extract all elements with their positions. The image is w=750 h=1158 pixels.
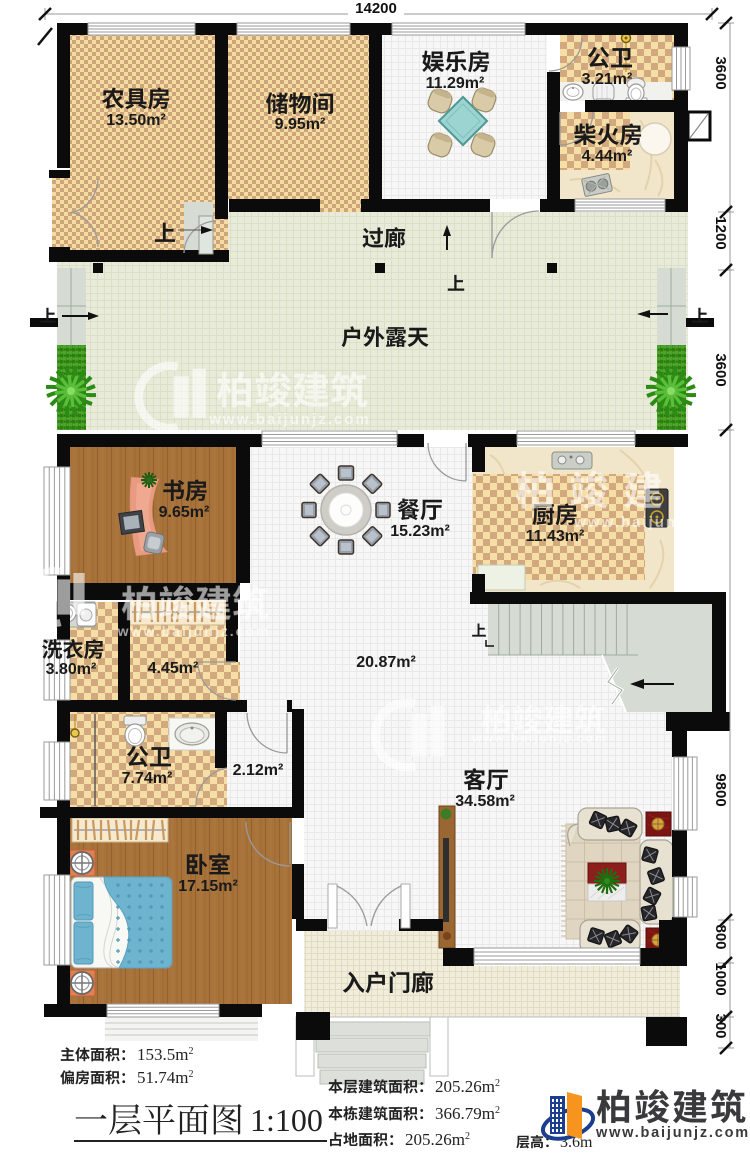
svg-text:17.15m²: 17.15m² xyxy=(178,878,238,895)
svg-text:1000: 1000 xyxy=(712,962,729,995)
svg-text:14200: 14200 xyxy=(355,0,397,17)
svg-text:3.80m²: 3.80m² xyxy=(46,661,97,678)
svg-text:www.baijunjz.com: www.baijunjz.com xyxy=(117,623,271,639)
svg-text:www.baijunjz.com: www.baijunjz.com xyxy=(573,514,735,531)
svg-text:11.29m²: 11.29m² xyxy=(426,75,485,92)
svg-text:4.44m²: 4.44m² xyxy=(582,148,633,165)
svg-text:www.baijunjz.com: www.baijunjz.com xyxy=(595,1125,750,1141)
svg-text:366.79m2: 366.79m2 xyxy=(435,1104,500,1123)
svg-text:34.58m²: 34.58m² xyxy=(455,793,515,810)
svg-text:205.26m2: 205.26m2 xyxy=(405,1130,470,1149)
svg-text:3.21m²: 3.21m² xyxy=(582,71,633,88)
svg-text:153.5m2: 153.5m2 xyxy=(137,1045,193,1064)
svg-text:3600: 3600 xyxy=(712,353,729,386)
svg-text:4.45m²: 4.45m² xyxy=(148,660,199,677)
svg-text:13.50m²: 13.50m² xyxy=(106,112,166,129)
svg-text:300: 300 xyxy=(712,1013,729,1038)
svg-text:www.baijunjz.com: www.baijunjz.com xyxy=(208,411,370,428)
svg-text:800: 800 xyxy=(712,924,729,949)
svg-text:9.95m²: 9.95m² xyxy=(275,116,326,133)
svg-text:www.baijunjz.com: www.baijunjz.com xyxy=(471,731,608,745)
svg-text:205.26m2: 205.26m2 xyxy=(435,1077,500,1096)
svg-text:1:100: 1:100 xyxy=(250,1102,323,1138)
svg-text:20.87m²: 20.87m² xyxy=(356,654,416,671)
svg-text:2.12m²: 2.12m² xyxy=(233,762,284,779)
svg-text:3600: 3600 xyxy=(712,56,729,89)
svg-text:9.65m²: 9.65m² xyxy=(159,504,210,521)
svg-text:1200: 1200 xyxy=(712,216,729,249)
svg-text:7.74m²: 7.74m² xyxy=(122,770,173,787)
svg-text:9800: 9800 xyxy=(712,773,729,806)
svg-text:51.74m2: 51.74m2 xyxy=(137,1068,193,1087)
svg-text:15.23m²: 15.23m² xyxy=(390,523,450,540)
